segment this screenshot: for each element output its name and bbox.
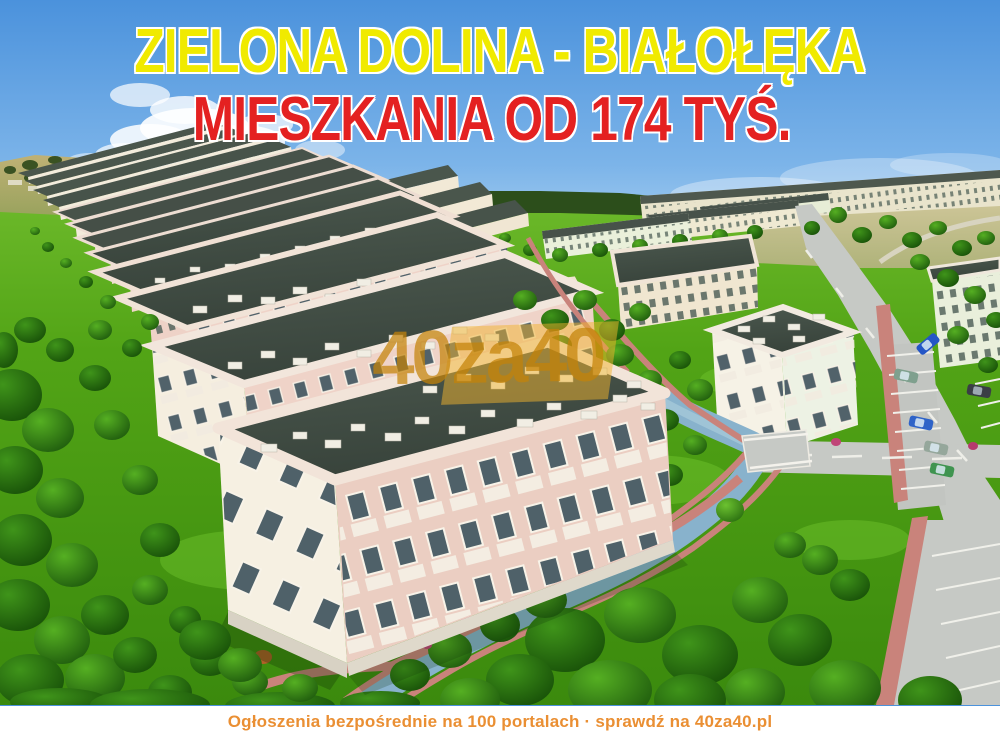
advertisement: 40za40 ZIELONA DOLINA - BIAŁOŁĘKA MIESZK… — [0, 0, 1000, 737]
estate-render — [0, 0, 1000, 705]
footer-text: Ogłoszenia bezpośrednie na 100 portalach… — [228, 712, 773, 732]
footer-bar: Ogłoszenia bezpośrednie na 100 portalach… — [0, 706, 1000, 737]
bridge — [742, 430, 812, 472]
